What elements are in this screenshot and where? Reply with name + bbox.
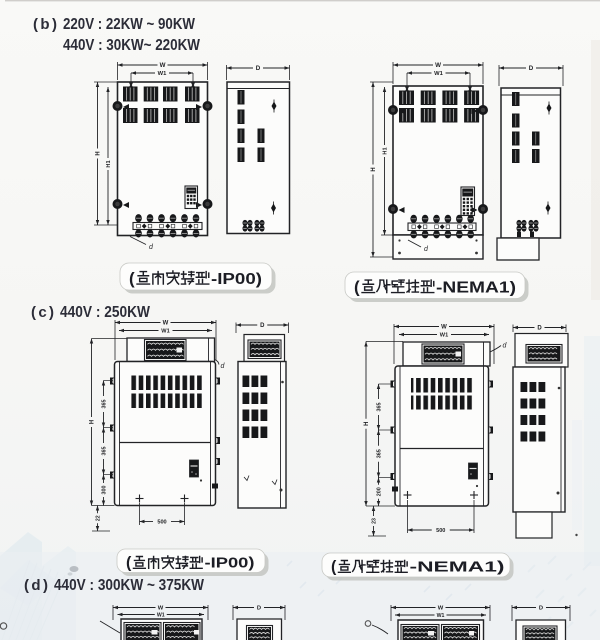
svg-text:440V : 30KW~ 220KW: 440V : 30KW~ 220KW	[63, 37, 200, 54]
svg-text:440V : 300KW ~ 375KW: 440V : 300KW ~ 375KW	[54, 577, 204, 594]
svg-text:W: W	[435, 62, 441, 69]
svg-text:H: H	[90, 420, 96, 424]
svg-text:W1: W1	[157, 613, 165, 619]
svg-text:W: W	[160, 62, 166, 69]
svg-text:300: 300	[102, 486, 108, 495]
svg-text:500: 500	[157, 520, 166, 526]
svg-text:-NEMA1): -NEMA1)	[436, 280, 516, 297]
svg-text:(: (	[331, 559, 337, 576]
svg-text:W1: W1	[434, 71, 443, 77]
svg-text:H: H	[371, 167, 377, 171]
svg-text:220V : 22KW ~ 90KW: 220V : 22KW ~ 90KW	[63, 16, 195, 33]
svg-text:( d ): ( d )	[24, 577, 48, 594]
svg-text:D: D	[256, 65, 261, 72]
svg-text:22: 22	[96, 515, 102, 521]
svg-text:( c ): ( c )	[31, 304, 54, 321]
svg-text:W: W	[158, 606, 164, 612]
svg-text:365: 365	[102, 447, 108, 456]
svg-text:-IP00): -IP00)	[211, 271, 262, 288]
svg-text:200: 200	[377, 487, 383, 496]
svg-text:23: 23	[372, 518, 378, 524]
svg-text:H1: H1	[383, 147, 389, 154]
svg-text:D: D	[537, 326, 542, 332]
svg-text:D: D	[539, 606, 543, 612]
svg-text:500: 500	[436, 528, 445, 534]
svg-text:440V : 250KW: 440V : 250KW	[60, 304, 150, 321]
svg-text:H: H	[96, 151, 102, 155]
svg-text:365: 365	[102, 400, 108, 409]
svg-text:365: 365	[377, 449, 383, 458]
svg-text:W1: W1	[437, 613, 445, 619]
svg-text:( b ): ( b )	[33, 16, 57, 33]
svg-text:-IP00): -IP00)	[205, 555, 255, 572]
svg-text:D: D	[529, 65, 534, 72]
svg-text:W1: W1	[158, 71, 167, 77]
svg-text:H1: H1	[106, 160, 112, 167]
svg-text:W: W	[163, 321, 169, 327]
svg-text:-NEMA1): -NEMA1)	[410, 559, 505, 576]
svg-text:W1: W1	[440, 333, 448, 339]
svg-text:(: (	[126, 555, 132, 572]
svg-text:365: 365	[377, 403, 383, 412]
svg-text:(: (	[129, 269, 135, 288]
svg-text:H: H	[364, 422, 370, 426]
svg-text:D: D	[257, 606, 261, 612]
svg-text:(: (	[354, 278, 360, 297]
svg-text:W: W	[438, 606, 444, 612]
svg-text:W: W	[441, 325, 447, 331]
svg-text:W1: W1	[161, 329, 169, 335]
svg-text:D: D	[260, 323, 265, 329]
